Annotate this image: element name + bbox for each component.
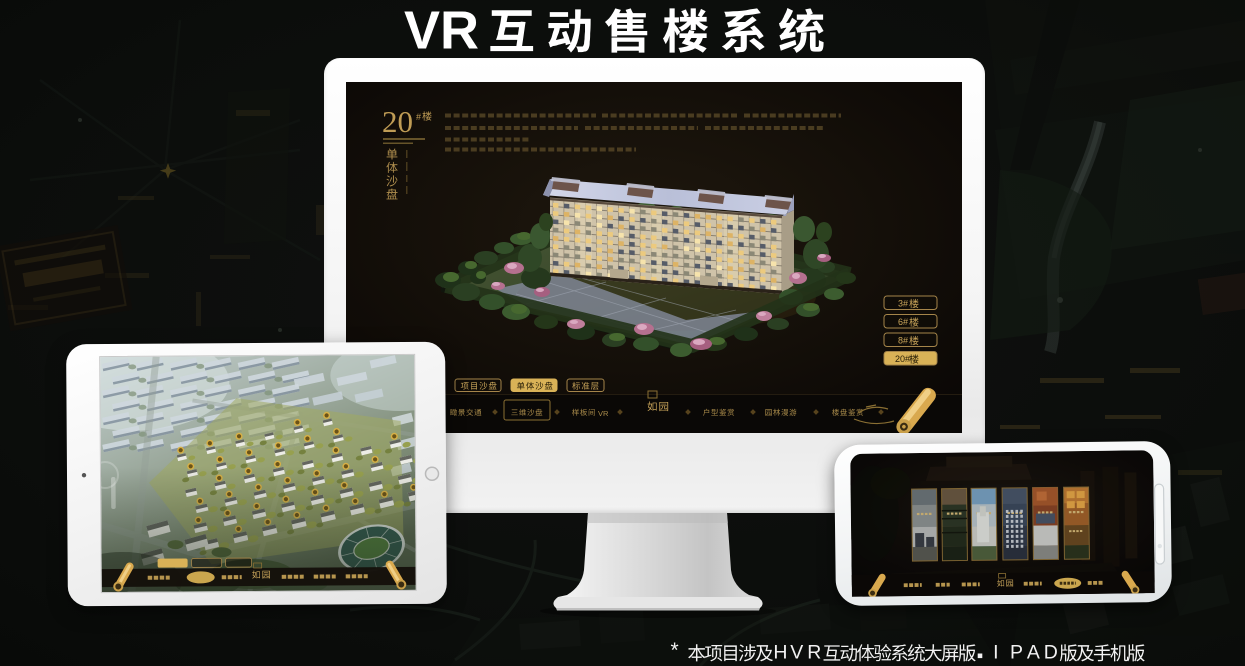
- svg-text:20: 20: [382, 104, 413, 139]
- svg-text:VR: VR: [598, 409, 609, 418]
- svg-text:8#: 8#: [898, 336, 908, 346]
- svg-text:R: R: [807, 642, 821, 664]
- svg-text:A: A: [1027, 642, 1040, 664]
- svg-text:#: #: [416, 112, 421, 122]
- svg-text:VR: VR: [404, 1, 479, 61]
- svg-text:3#: 3#: [898, 299, 908, 309]
- svg-text:H: H: [773, 642, 787, 664]
- svg-text:6#: 6#: [898, 317, 908, 327]
- svg-text:V: V: [790, 642, 803, 664]
- svg-text:P: P: [1010, 642, 1023, 664]
- svg-text:D: D: [1044, 642, 1058, 664]
- svg-text:*: *: [671, 639, 679, 662]
- svg-text:I: I: [993, 642, 998, 664]
- svg-text:20#: 20#: [895, 354, 910, 364]
